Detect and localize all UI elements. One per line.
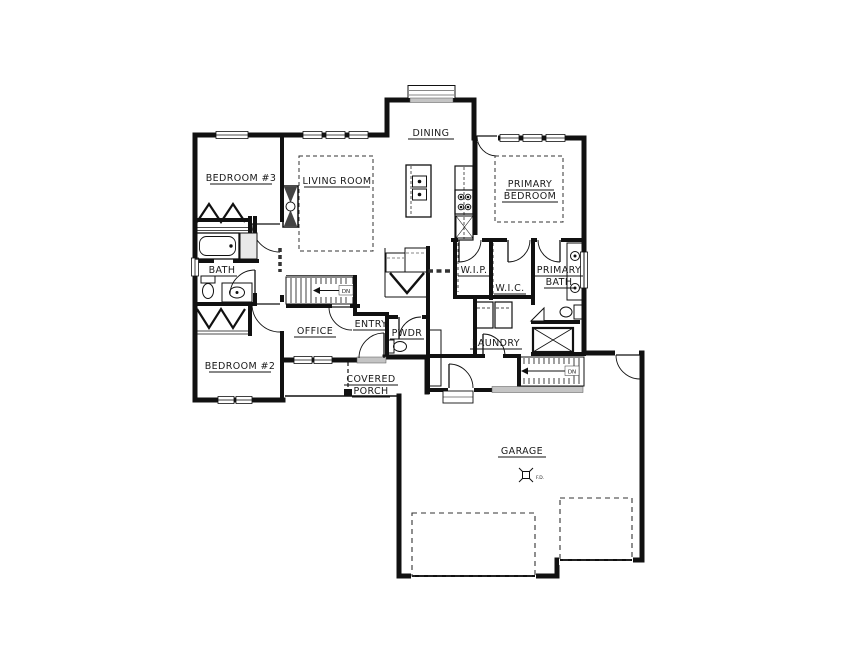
room-label-laundry: LAUNDRY [472,338,520,349]
porch-post [344,389,352,396]
room-label-garage: GARAGE [501,446,543,457]
room-label-entry: ENTRY [355,319,388,330]
doors [230,136,640,388]
tub-cabinet [240,233,257,259]
fireplace [283,186,298,227]
door-arc-garage-side [616,355,640,379]
toilet-bowl [394,342,407,352]
shower [533,328,573,352]
room-label-living-room: LIVING ROOM [302,176,371,187]
room-label-bath: BATH [209,265,236,276]
main-stairs: DN [286,276,353,305]
door-arc-bedroom2 [252,304,280,332]
basement-stairs: DN [519,357,584,386]
primary-bath-fixtures [533,243,584,352]
dryer [495,302,512,328]
room-label-office: OFFICE [297,326,333,337]
door-arc-front [359,333,384,358]
room-label-wic: W.I.C. [495,283,524,294]
door-arc-mud-garage [449,364,473,388]
room-label-wip: W.I.P. [461,265,488,276]
toilet-tank [201,276,215,283]
room-label-bedroom3: BEDROOM #3 [206,173,277,184]
living-room-area [299,156,373,251]
toilet-bowl [203,284,214,299]
kitchen [406,165,473,240]
powder-fixtures [388,340,407,353]
garage-bay-small [560,498,632,560]
toilet-tank [574,305,582,319]
bay-window [408,86,455,103]
room-label-primary-bedroom-1: PRIMARY [508,179,552,190]
kitchen-counter [455,166,473,240]
toilet-bowl [560,307,572,317]
room-label-bedroom2: BEDROOM #2 [205,361,276,372]
stairs-basement-dn-label: DN [568,370,576,376]
room-label-primary-bedroom-2: BEDROOM [504,191,556,202]
floor-drain-symbol: F.D. [519,468,544,482]
room-label-covered-porch-2: PORCH [353,386,388,397]
room-label-primary-bath-2: BATH [546,277,573,288]
washer [476,302,493,328]
room-labels: DINING BEDROOM #3 LIVING ROOM PRIMARY BE… [205,128,583,457]
room-label-covered-porch-1: COVERED [346,374,395,385]
room-label-powder: PWDR [392,328,423,339]
floor-drain-label: F.D. [536,475,544,481]
kitchen-island [406,165,431,217]
garage-bay-large [412,513,535,576]
stairs-main-dn-label: DN [342,289,350,295]
entry-closet-rod [390,273,424,293]
floor-plan-page: DN DN [0,0,858,650]
room-label-primary-bath-1: PRIMARY [537,265,581,276]
room-label-dining: DINING [413,128,450,139]
floor-plan-drawing: DN DN [0,0,858,650]
bedroom2-closet-rod [197,309,245,328]
